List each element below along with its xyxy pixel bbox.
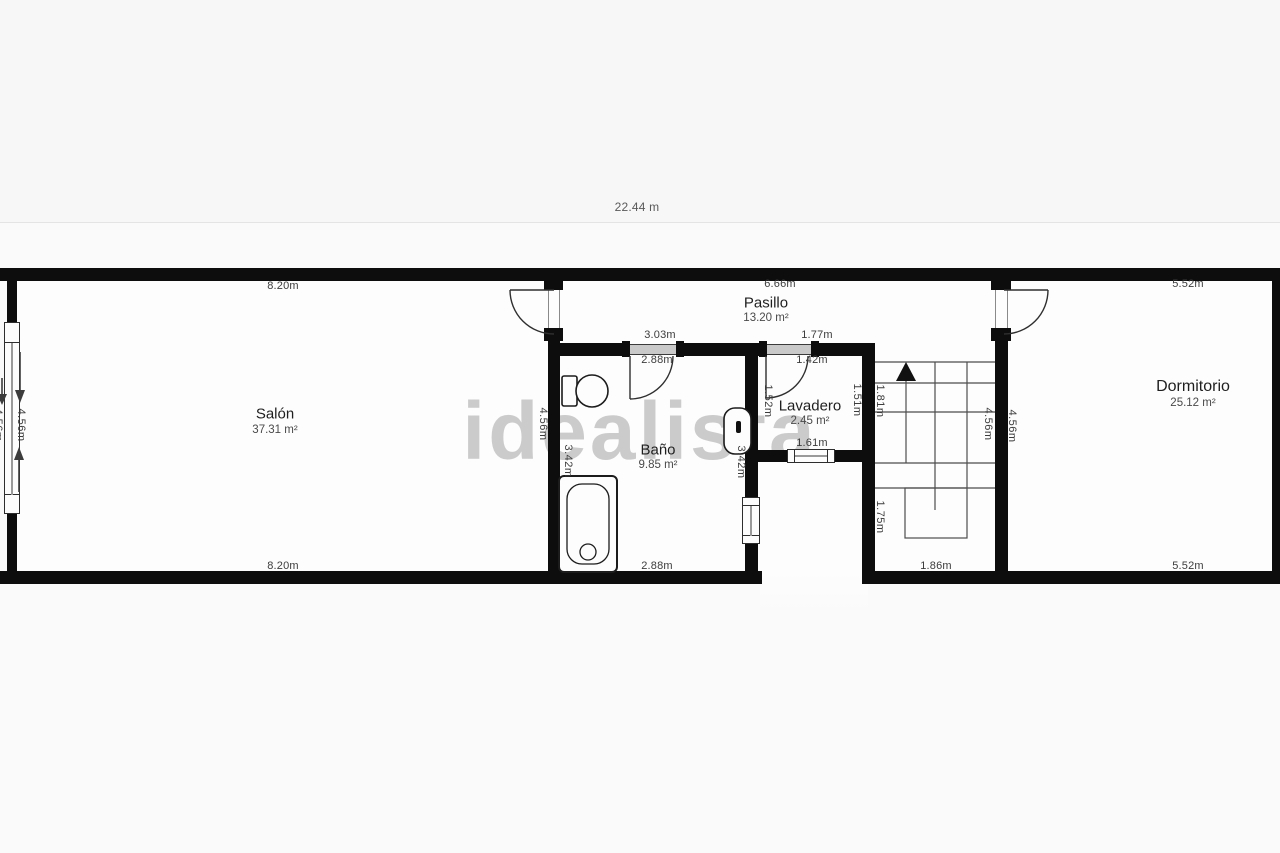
lavadero-dim-right: 1.51m — [851, 383, 863, 416]
pasillo-name: Pasillo — [744, 295, 788, 312]
lavadero-dim-left: 1.52m — [762, 384, 774, 417]
salon-name: Salón — [256, 406, 294, 423]
bano-dim-wall-left-lower: 3.42m — [562, 444, 574, 477]
bano-dim-door-bottom: 2.88m — [641, 354, 673, 366]
dormitorio-dim-left: 4.56m — [1006, 409, 1018, 442]
salon-dim-bottom: 8.20m — [267, 560, 299, 572]
bano-dim-bottom: 2.88m — [641, 560, 673, 572]
lavadero-name: Lavadero — [779, 398, 842, 415]
dormitorio-name: Dormitorio — [1156, 378, 1230, 396]
salon-dim-left-outer: 4.56m — [0, 408, 4, 441]
stairs-dim-bottom: 1.86m — [920, 560, 952, 572]
stairs-dim-lower-left: 1.75m — [874, 500, 886, 533]
salon-dim-top: 8.20m — [267, 280, 299, 292]
dormitorio-area: 25.12 m² — [1170, 397, 1215, 409]
bathtub-icon — [559, 476, 617, 572]
salon-area: 37.31 m² — [252, 424, 297, 436]
stairs-dim-right: 4.56m — [982, 407, 994, 440]
bano-dim-door-top: 3.03m — [644, 329, 676, 341]
stairs-up-arrow-icon — [896, 362, 916, 381]
pasillo-dim-top: 6.66m — [764, 278, 796, 290]
dormitorio-door-arc — [1004, 290, 1048, 334]
dormitorio-dim-top: 5.52m — [1172, 278, 1204, 290]
bano-name: Baño — [640, 442, 675, 459]
plan-vector-layer — [0, 0, 1280, 853]
dormitorio-dim-bottom: 5.52m — [1172, 560, 1204, 572]
lavadero-dim-bottom: 1.61m — [796, 437, 828, 449]
salon-dim-left: 4.56m — [15, 408, 27, 441]
lavadero-dim-door-bottom: 1.42m — [796, 354, 828, 366]
staircase — [875, 362, 995, 538]
bano-dim-wall-left-upper: 4.56m — [537, 407, 549, 440]
toilet-icon — [562, 375, 608, 407]
lavadero-dim-door-top: 1.77m — [801, 329, 833, 341]
lavadero-area: 2.45 m² — [791, 415, 830, 427]
bano-dim-wall-right: 3.42m — [735, 445, 747, 478]
salon-door-arc — [510, 290, 554, 334]
floor-plan-viewer: 22.44 m idealista — [0, 0, 1280, 853]
stairs-dim-upper-left: 1.81m — [874, 384, 886, 417]
bano-area: 9.85 m² — [639, 459, 678, 471]
pasillo-area: 13.20 m² — [743, 312, 788, 324]
